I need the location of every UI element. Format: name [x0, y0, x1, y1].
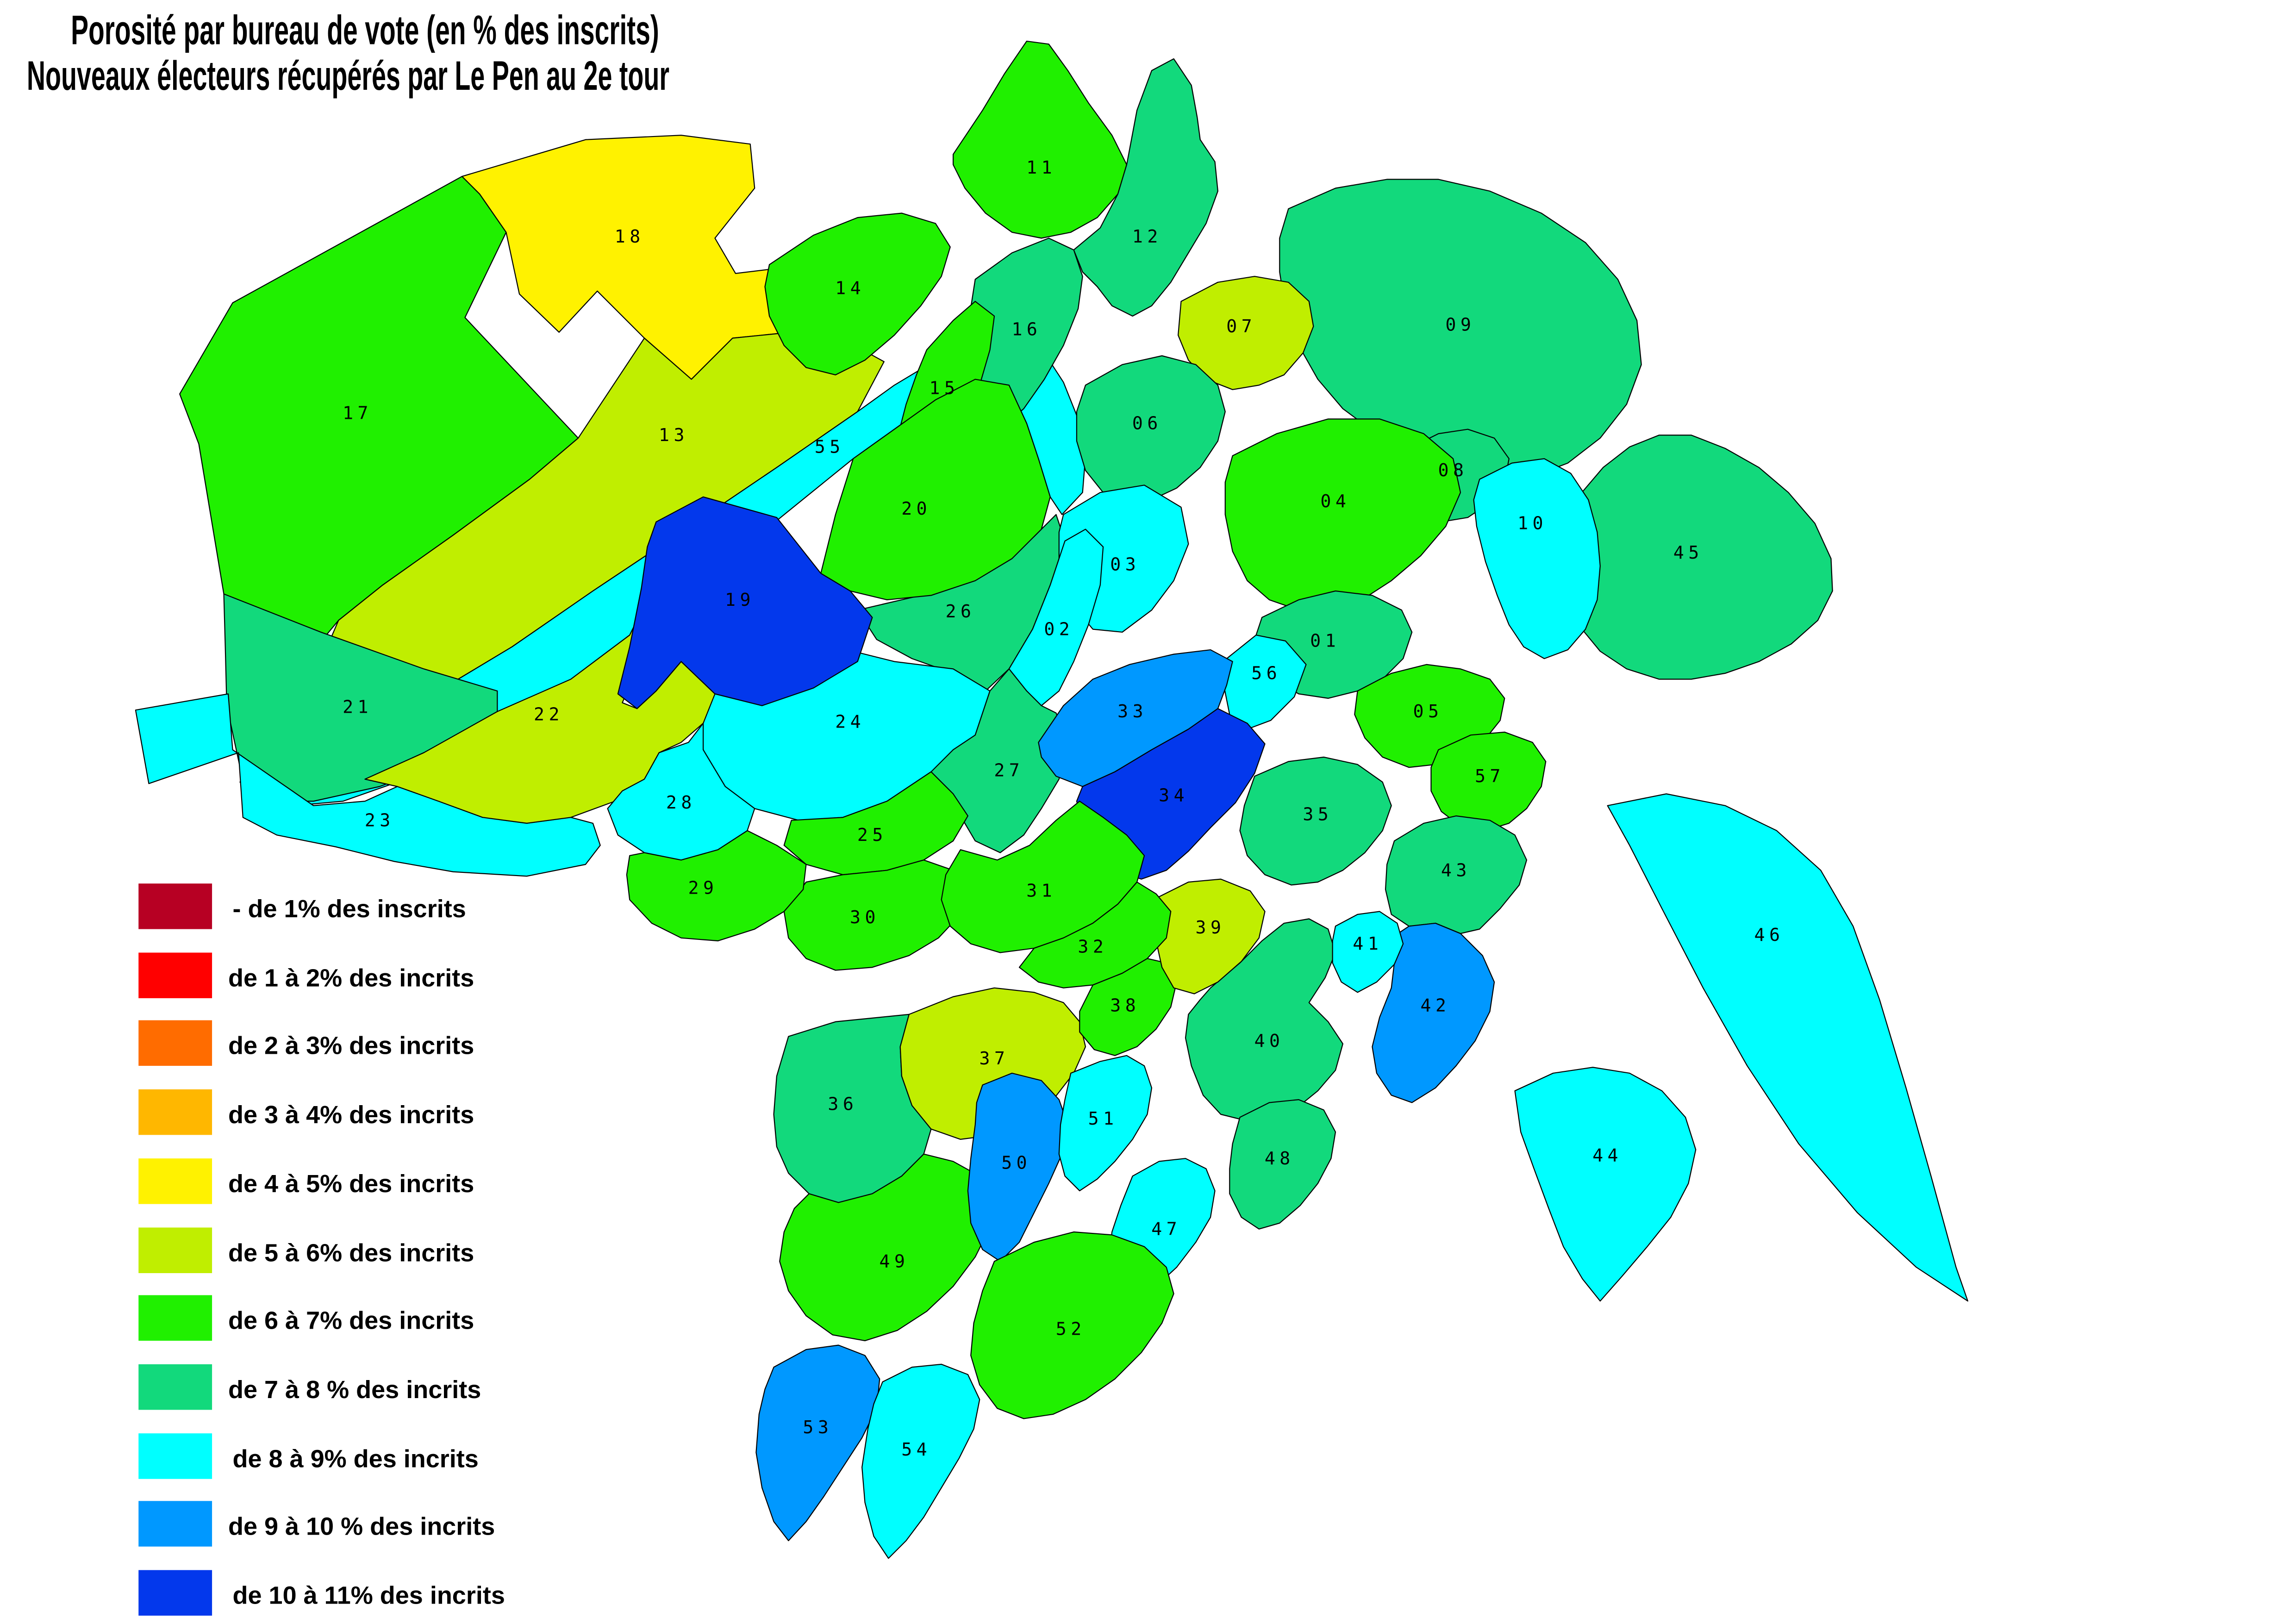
district-label-07: 07	[1226, 316, 1256, 336]
legend-swatch-1-2	[138, 952, 212, 998]
district-label-47: 47	[1151, 1219, 1181, 1239]
district-label-31: 31	[1026, 881, 1056, 901]
district-label-36: 36	[828, 1094, 858, 1114]
legend-label-2-3: de 2 à 3% des incrits	[228, 1032, 474, 1060]
legend-label-10-11: de 10 à 11% des incrits	[233, 1582, 505, 1610]
legend-label-6-7: de 6 à 7% des incrits	[228, 1307, 474, 1335]
district-label-33: 33	[1117, 701, 1148, 721]
district-label-37: 37	[980, 1048, 1010, 1069]
legend-label-5-6: de 5 à 6% des incrits	[228, 1239, 474, 1267]
district-label-32: 32	[1078, 936, 1108, 957]
district-label-27: 27	[994, 760, 1024, 780]
district-label-39: 39	[1196, 917, 1226, 938]
district-label-51: 51	[1088, 1108, 1118, 1129]
legend-swatch-lt1	[138, 883, 212, 929]
legend-swatch-4-5	[138, 1158, 212, 1204]
legend-swatch-9-10	[138, 1501, 212, 1546]
district-label-30: 30	[850, 907, 880, 927]
district-label-11: 11	[1026, 157, 1056, 178]
district-11[interactable]	[953, 41, 1127, 238]
legend-label-lt1: - de 1% des inscrits	[233, 895, 466, 923]
district-label-24: 24	[835, 711, 865, 732]
district-label-06: 06	[1132, 413, 1162, 434]
district-label-53: 53	[803, 1417, 833, 1437]
legend-label-3-4: de 3 à 4% des incrits	[228, 1101, 474, 1129]
district-label-43: 43	[1441, 860, 1471, 880]
district-04[interactable]	[1225, 419, 1460, 610]
district-label-21: 21	[343, 697, 373, 717]
district-label-16: 16	[1011, 319, 1042, 339]
district-label-35: 35	[1303, 804, 1333, 825]
legend-swatch-3-4	[138, 1089, 212, 1135]
district-label-49: 49	[880, 1251, 910, 1271]
district-54[interactable]	[862, 1364, 980, 1558]
district-label-23: 23	[365, 810, 395, 830]
district-label-54: 54	[901, 1439, 931, 1460]
district-label-52: 52	[1056, 1318, 1086, 1339]
district-10[interactable]	[1474, 459, 1600, 659]
district-label-13: 13	[659, 425, 689, 445]
legend-label-7-8: de 7 à 8 % des incrits	[228, 1376, 481, 1404]
title-line-1: Porosité par bureau de vote (en % des in…	[71, 6, 659, 53]
legend-label-1-2: de 1 à 2% des incrits	[228, 964, 474, 992]
legend-label-8-9: de 8 à 9% des incrits	[233, 1445, 479, 1473]
district-label-25: 25	[857, 825, 887, 845]
district-label-01: 01	[1310, 631, 1340, 651]
map-canvas: 1718135514111216150908070604451026202421…	[0, 0, 2296, 1623]
district-label-26: 26	[946, 601, 976, 622]
district-label-04: 04	[1321, 491, 1351, 511]
legend-swatch-6-7	[138, 1295, 212, 1341]
district-label-12: 12	[1132, 226, 1162, 247]
map-page: 1718135514111216150908070604451026202421…	[0, 0, 2296, 1623]
district-label-50: 50	[1001, 1152, 1031, 1173]
district-label-15: 15	[930, 378, 960, 398]
legend-label-4-5: de 4 à 5% des incrits	[228, 1170, 474, 1198]
district-label-48: 48	[1265, 1148, 1295, 1169]
district-label-28: 28	[666, 792, 696, 813]
district-label-57: 57	[1475, 766, 1505, 786]
district-label-46: 46	[1754, 925, 1784, 945]
district-label-20: 20	[901, 498, 931, 519]
district-label-29: 29	[688, 877, 718, 898]
district-label-38: 38	[1110, 995, 1140, 1016]
district-label-03: 03	[1110, 554, 1140, 575]
page-title: Porosité par bureau de vote (en % des in…	[27, 6, 669, 98]
district-label-44: 44	[1592, 1145, 1622, 1166]
district-label-17: 17	[343, 403, 373, 423]
title-line-2: Nouveaux électeurs récupérés par Le Pen …	[27, 52, 669, 99]
district-label-02: 02	[1044, 619, 1074, 639]
district-label-10: 10	[1517, 513, 1547, 534]
district-label-22: 22	[534, 704, 564, 725]
district-44[interactable]	[1515, 1067, 1696, 1301]
district-label-45: 45	[1673, 542, 1703, 563]
legend: - de 1% des inscrits de 1 à 2% des incri…	[138, 883, 505, 1616]
district-label-05: 05	[1413, 701, 1443, 721]
district-label-55: 55	[815, 436, 845, 457]
legend-swatch-8-9	[138, 1433, 212, 1479]
legend-label-9-10: de 9 à 10 % des incrits	[228, 1512, 495, 1540]
district-label-40: 40	[1254, 1031, 1285, 1051]
district-label-18: 18	[615, 226, 645, 247]
district-label-34: 34	[1159, 785, 1189, 805]
district-label-09: 09	[1446, 315, 1476, 335]
district-label-42: 42	[1421, 995, 1451, 1016]
district-label-19: 19	[725, 590, 755, 610]
district-53[interactable]	[756, 1345, 880, 1541]
legend-swatch-10-11	[138, 1570, 212, 1616]
district-label-14: 14	[835, 278, 865, 298]
district-label-08: 08	[1438, 460, 1468, 480]
district-label-41: 41	[1353, 933, 1383, 954]
legend-swatch-5-6	[138, 1227, 212, 1273]
legend-swatch-7-8	[138, 1364, 212, 1410]
district-label-56: 56	[1251, 663, 1281, 684]
legend-swatch-2-3	[138, 1020, 212, 1066]
